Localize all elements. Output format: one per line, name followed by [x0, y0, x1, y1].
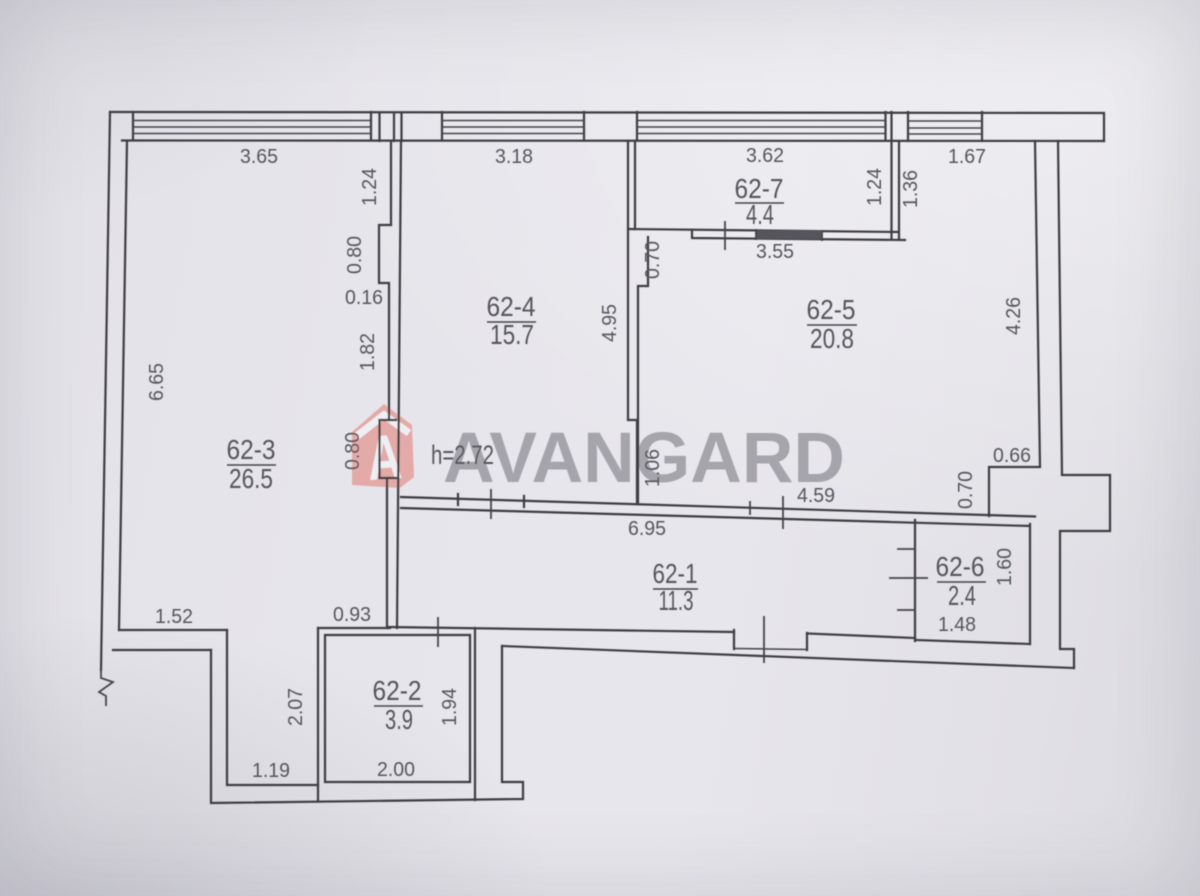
svg-text:62-3: 62-3 [227, 434, 276, 465]
svg-text:15.7: 15.7 [490, 319, 534, 350]
svg-text:1.48: 1.48 [938, 613, 976, 636]
svg-text:62-2: 62-2 [373, 675, 422, 706]
svg-text:1.60: 1.60 [993, 548, 1016, 586]
svg-text:3.62: 3.62 [746, 144, 784, 167]
svg-text:0.80: 0.80 [343, 236, 366, 274]
svg-text:0.93: 0.93 [333, 603, 371, 626]
svg-text:2.4: 2.4 [948, 580, 976, 611]
svg-text:0.16: 0.16 [345, 286, 383, 309]
svg-text:1.94: 1.94 [438, 688, 461, 726]
svg-text:20.8: 20.8 [810, 323, 854, 354]
svg-text:4.4: 4.4 [746, 199, 774, 230]
svg-text:1.24: 1.24 [358, 168, 381, 206]
svg-text:0.70: 0.70 [954, 471, 977, 509]
svg-text:0.66: 0.66 [993, 444, 1031, 467]
svg-text:h=2.72: h=2.72 [431, 440, 494, 470]
svg-text:4.26: 4.26 [1002, 297, 1025, 335]
svg-text:4.59: 4.59 [797, 484, 835, 507]
svg-text:1.24: 1.24 [863, 168, 886, 206]
svg-text:4.95: 4.95 [598, 304, 621, 342]
svg-text:0.80: 0.80 [341, 432, 364, 470]
svg-text:3.55: 3.55 [756, 240, 794, 263]
svg-text:62-6: 62-6 [936, 551, 985, 582]
svg-text:2.07: 2.07 [284, 688, 307, 726]
svg-text:6.65: 6.65 [145, 363, 168, 401]
svg-text:3.18: 3.18 [495, 145, 533, 168]
svg-text:0.70: 0.70 [641, 241, 664, 279]
svg-text:62-5: 62-5 [807, 294, 856, 325]
svg-text:6.95: 6.95 [628, 517, 666, 540]
svg-text:2.00: 2.00 [377, 758, 415, 781]
svg-text:1.52: 1.52 [155, 605, 193, 628]
svg-text:1.82: 1.82 [356, 333, 379, 371]
svg-text:1.06: 1.06 [641, 449, 664, 487]
svg-text:26.5: 26.5 [229, 463, 273, 494]
svg-text:62-4: 62-4 [487, 291, 536, 322]
svg-text:3.9: 3.9 [385, 704, 413, 735]
svg-text:1.67: 1.67 [948, 145, 986, 168]
svg-text:1.19: 1.19 [252, 759, 290, 782]
svg-text:11.3: 11.3 [659, 585, 694, 616]
svg-text:3.65: 3.65 [240, 145, 278, 168]
svg-text:1.36: 1.36 [899, 170, 922, 208]
